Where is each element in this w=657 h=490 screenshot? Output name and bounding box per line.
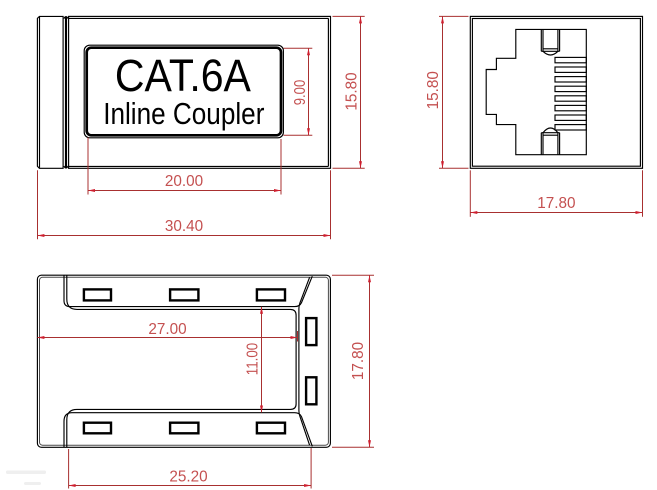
svg-text:Inline Coupler: Inline Coupler [103,97,265,132]
svg-text:27.00: 27.00 [148,321,186,338]
svg-text:17.80: 17.80 [537,195,575,212]
svg-text:11.00: 11.00 [244,343,261,376]
svg-text:9.00: 9.00 [292,80,309,106]
svg-text:25.20: 25.20 [169,469,207,486]
svg-text:15.80: 15.80 [343,72,360,110]
svg-text:15.80: 15.80 [425,71,442,109]
svg-text:17.80: 17.80 [350,342,367,380]
svg-text:20.00: 20.00 [165,173,203,190]
svg-text:CAT.6A: CAT.6A [115,51,251,101]
svg-text:30.40: 30.40 [165,218,203,235]
